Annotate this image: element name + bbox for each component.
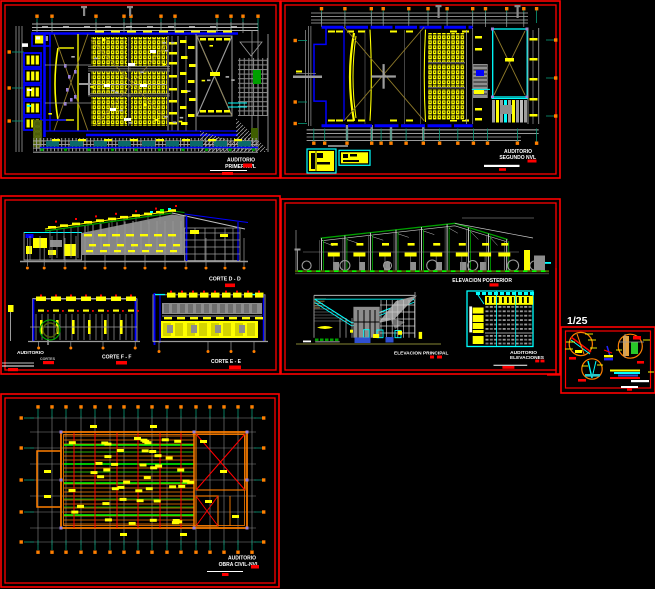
svg-text:ELEVACIONES: ELEVACIONES	[510, 355, 545, 361]
svg-text:AUDITORIO: AUDITORIO	[227, 158, 255, 164]
svg-text:CORTE D - D: CORTE D - D	[209, 277, 241, 283]
svg-text:CORTE F - F: CORTE F - F	[102, 355, 131, 361]
svg-text:CORTES: CORTES	[40, 357, 56, 361]
svg-text:AUDITORIO: AUDITORIO	[17, 350, 44, 356]
svg-text:CORTE E - E: CORTE E - E	[211, 359, 242, 365]
svg-text:ELEVACION POSTERIOR: ELEVACION POSTERIOR	[452, 278, 512, 284]
svg-text:1/25: 1/25	[567, 315, 588, 327]
svg-text:AUDITORIO: AUDITORIO	[228, 556, 256, 562]
